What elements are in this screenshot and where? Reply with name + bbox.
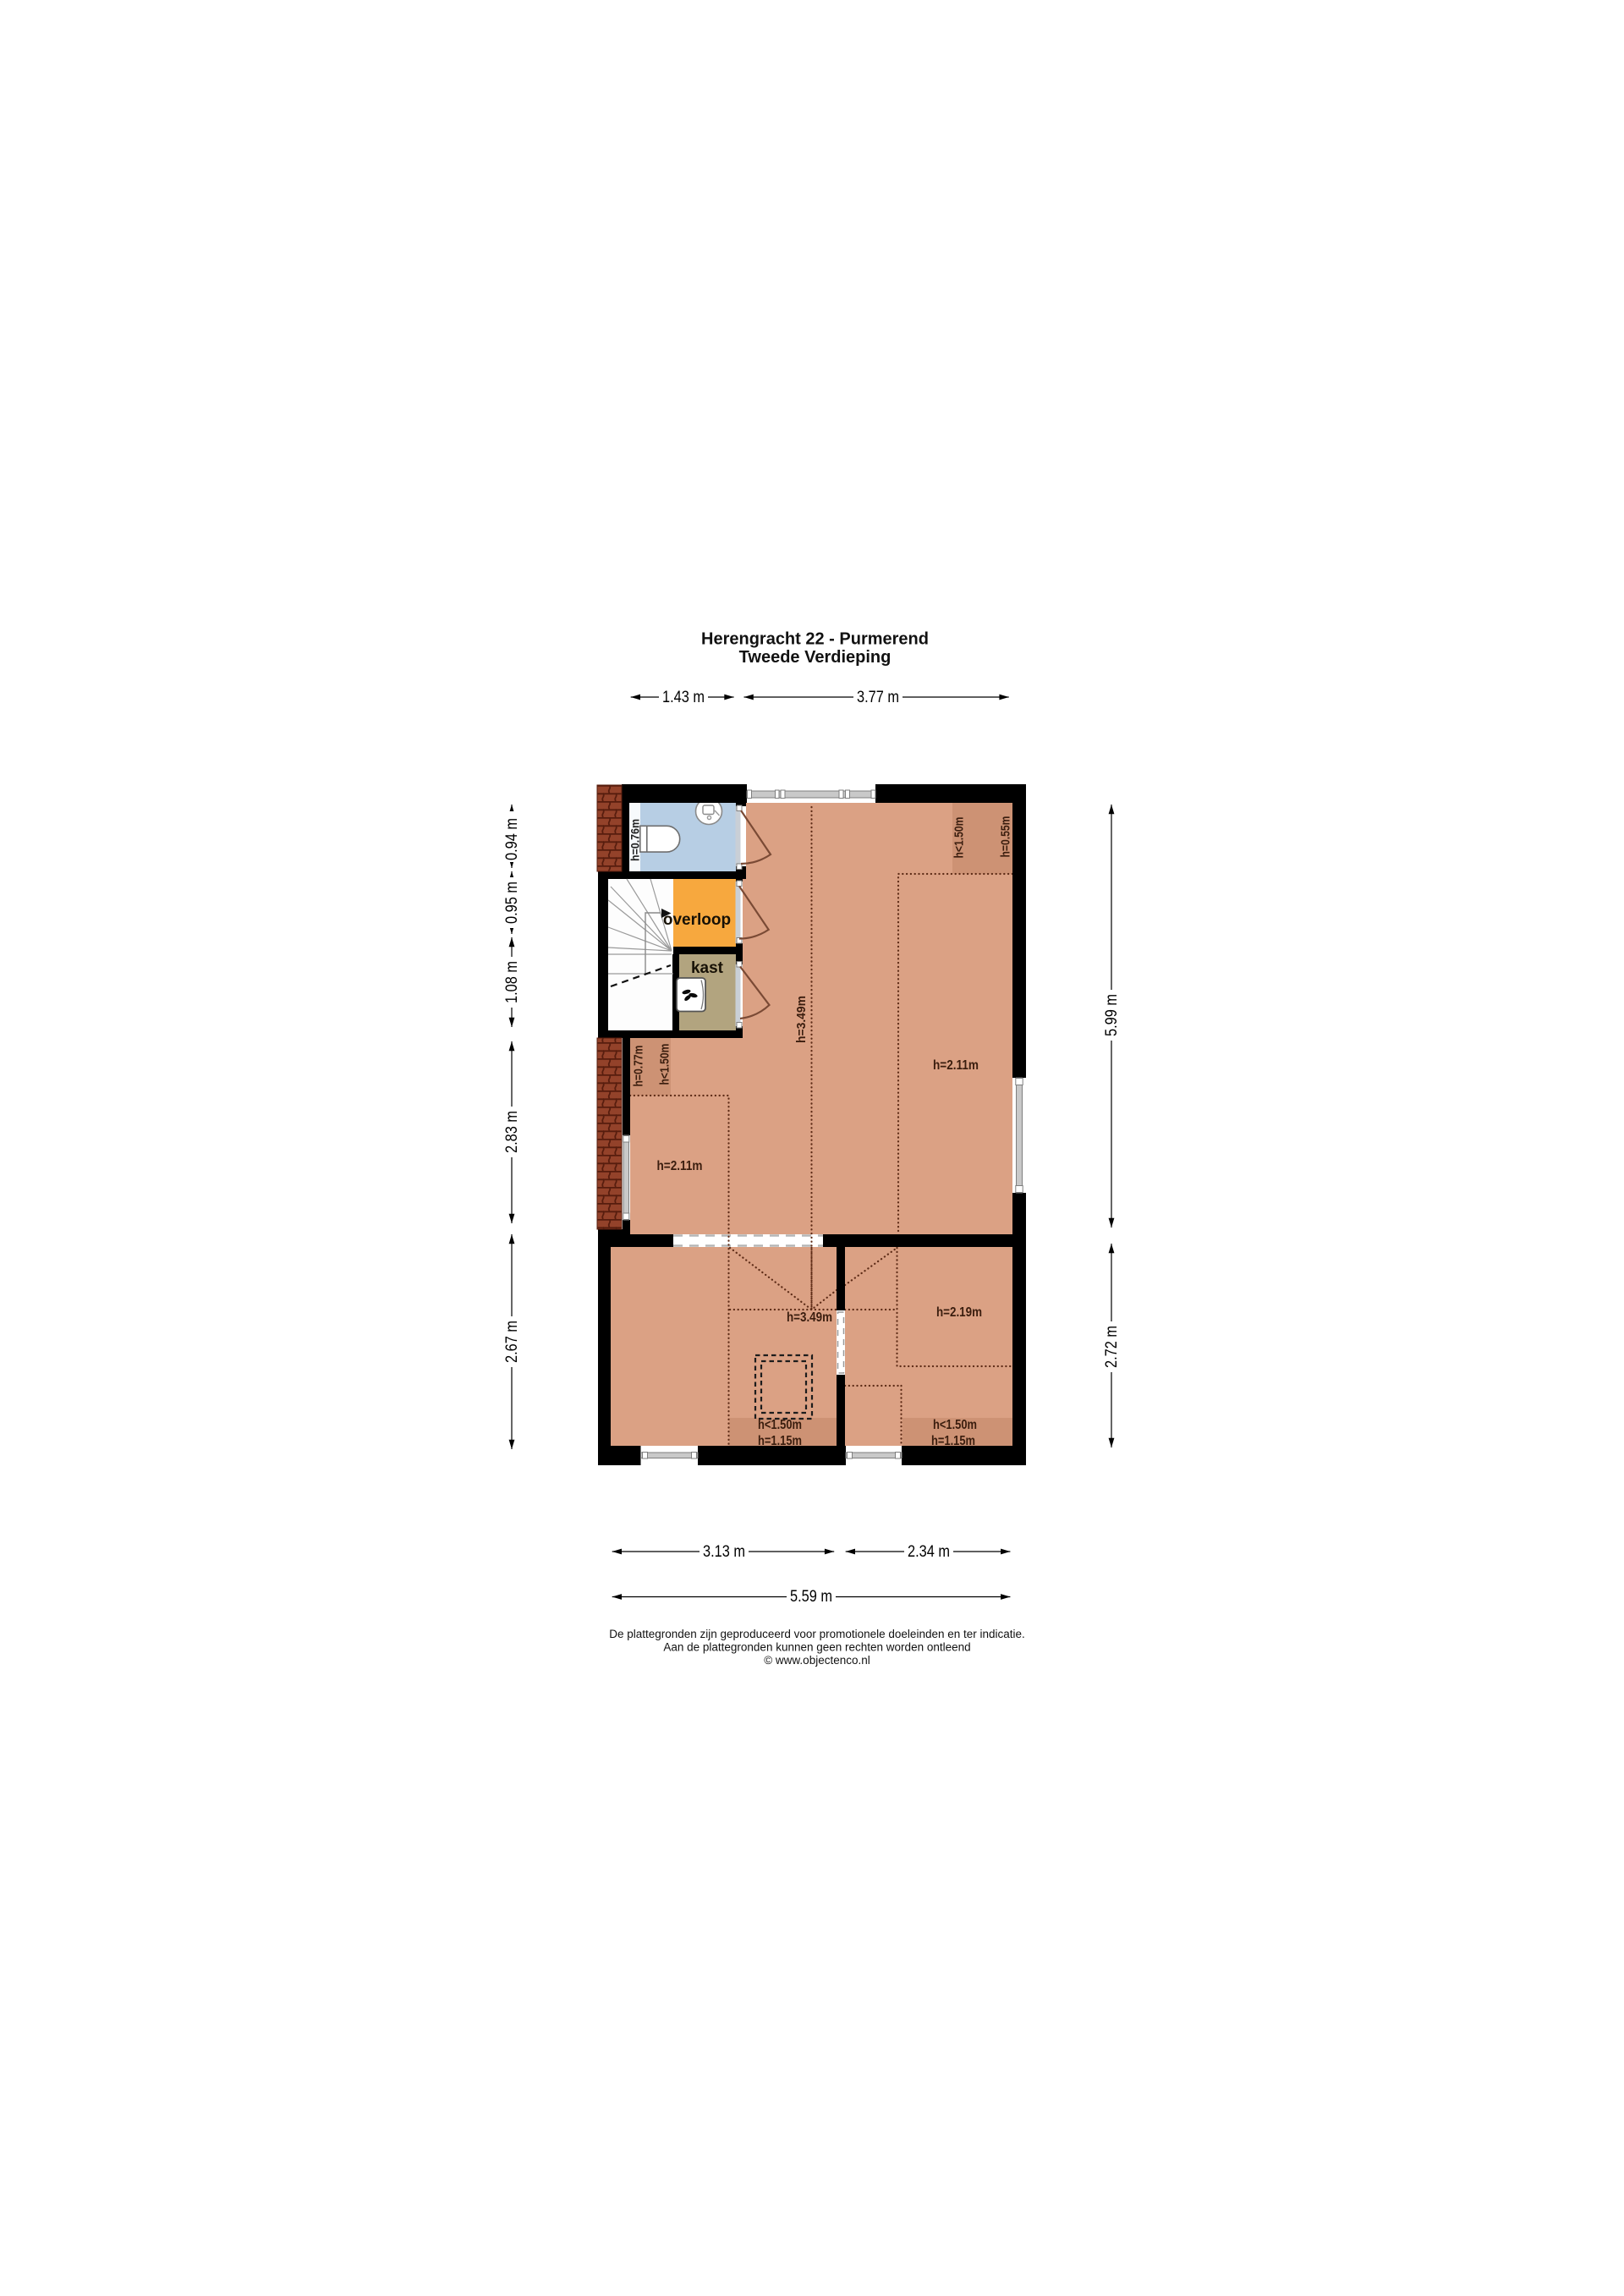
svg-text:h=2.19m: h=2.19m: [936, 1305, 982, 1320]
svg-text:kast: kast: [691, 959, 724, 977]
svg-text:h=3.49m: h=3.49m: [787, 1310, 832, 1325]
svg-text:h<1.50m: h<1.50m: [658, 1044, 672, 1085]
svg-text:3.13 m: 3.13 m: [703, 1543, 745, 1561]
svg-text:© www.objectenco.nl: © www.objectenco.nl: [764, 1654, 870, 1667]
svg-text:h=2.11m: h=2.11m: [933, 1058, 979, 1073]
svg-text:h=2.11m: h=2.11m: [657, 1159, 703, 1173]
svg-text:Aan de plattegronden kunnen ge: Aan de plattegronden kunnen geen rechten…: [663, 1641, 970, 1654]
svg-text:h=0.77m: h=0.77m: [632, 1046, 646, 1087]
svg-text:overloop: overloop: [663, 911, 731, 929]
svg-text:h<1.50m: h<1.50m: [758, 1418, 802, 1432]
svg-text:2.83 m: 2.83 m: [503, 1111, 521, 1153]
svg-text:h=1.15m: h=1.15m: [758, 1434, 802, 1448]
svg-text:h=1.15m: h=1.15m: [931, 1434, 975, 1448]
svg-text:h<1.50m: h<1.50m: [933, 1418, 977, 1432]
svg-text:3.77 m: 3.77 m: [857, 689, 899, 706]
svg-text:Herengracht 22 - Purmerend: Herengracht 22 - Purmerend: [701, 630, 929, 649]
svg-text:h<1.50m: h<1.50m: [952, 817, 967, 859]
svg-text:Tweede Verdieping: Tweede Verdieping: [739, 648, 892, 667]
svg-text:1.08 m: 1.08 m: [503, 961, 521, 1003]
svg-text:5.59 m: 5.59 m: [790, 1588, 832, 1606]
svg-text:2.72 m: 2.72 m: [1103, 1326, 1121, 1368]
svg-text:h=0.76m: h=0.76m: [628, 819, 642, 861]
svg-text:De plattegronden zijn geproduc: De plattegronden zijn geproduceerd voor …: [609, 1628, 1025, 1640]
svg-text:h=0.55m: h=0.55m: [999, 816, 1013, 858]
svg-text:2.34 m: 2.34 m: [908, 1543, 950, 1561]
svg-text:0.94 m: 0.94 m: [503, 818, 521, 860]
svg-text:0.95 m: 0.95 m: [503, 882, 521, 924]
svg-text:h=3.49m: h=3.49m: [794, 996, 809, 1043]
svg-text:2.67 m: 2.67 m: [503, 1321, 521, 1363]
svg-text:5.99 m: 5.99 m: [1103, 994, 1121, 1036]
svg-text:1.43 m: 1.43 m: [662, 689, 705, 706]
